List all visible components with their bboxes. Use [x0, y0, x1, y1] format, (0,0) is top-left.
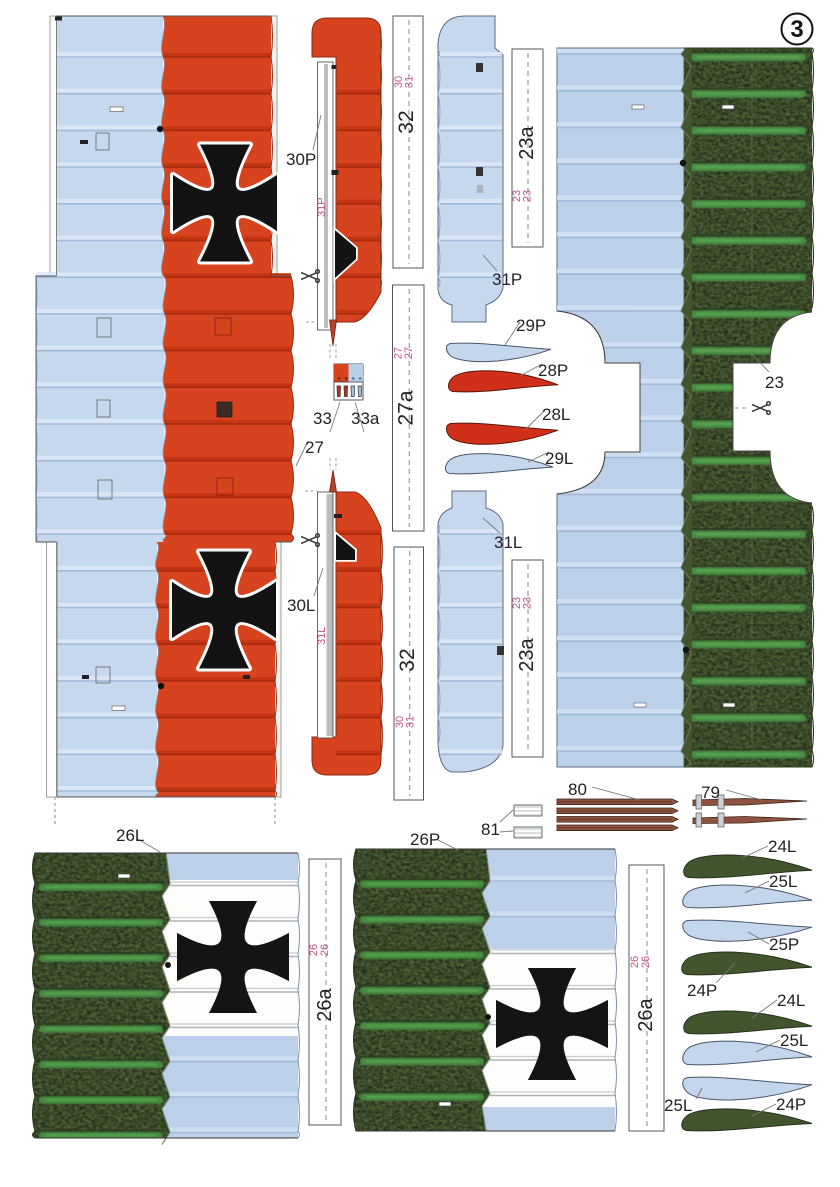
svg-text:25P: 25P — [769, 935, 799, 954]
svg-text:27a: 27a — [395, 390, 418, 425]
svg-text:24P: 24P — [776, 1095, 806, 1114]
svg-text:26L: 26L — [116, 826, 144, 845]
svg-text:25L: 25L — [664, 1096, 692, 1115]
svg-text:24P: 24P — [687, 981, 717, 1000]
svg-text:26a: 26a — [635, 997, 657, 1031]
svg-text:30P: 30P — [286, 150, 316, 169]
svg-text:31: 31 — [405, 716, 417, 728]
svg-text:79: 79 — [701, 783, 720, 802]
svg-text:26: 26 — [319, 944, 331, 956]
svg-text:23a: 23a — [516, 637, 538, 671]
svg-text:23: 23 — [765, 373, 784, 392]
svg-text:31P: 31P — [316, 197, 328, 217]
svg-text:23: 23 — [522, 597, 534, 609]
svg-text:25L: 25L — [769, 872, 797, 891]
svg-text:26P: 26P — [410, 830, 440, 849]
svg-text:24L: 24L — [777, 991, 805, 1010]
svg-text:32: 32 — [396, 648, 419, 671]
svg-text:28L: 28L — [542, 405, 570, 424]
svg-text:26: 26 — [640, 956, 652, 968]
svg-text:26a: 26a — [314, 987, 336, 1021]
svg-text:23: 23 — [522, 190, 534, 202]
svg-text:31L: 31L — [494, 533, 522, 552]
svg-text:24L: 24L — [768, 837, 796, 856]
svg-text:29L: 29L — [545, 449, 573, 468]
svg-text:28P: 28P — [538, 361, 568, 380]
svg-text:31L: 31L — [316, 627, 328, 645]
svg-text:31: 31 — [404, 76, 416, 88]
svg-text:27: 27 — [305, 438, 324, 457]
svg-text:27: 27 — [403, 347, 415, 359]
svg-text:80: 80 — [568, 780, 587, 799]
svg-text:23a: 23a — [516, 125, 538, 159]
svg-text:30L: 30L — [287, 596, 315, 615]
svg-text:33a: 33a — [351, 409, 380, 428]
svg-text:31P: 31P — [492, 270, 522, 289]
svg-text:81: 81 — [481, 820, 500, 839]
svg-text:25L: 25L — [780, 1031, 808, 1050]
svg-text:33: 33 — [313, 409, 332, 428]
svg-text:3: 3 — [790, 16, 803, 43]
svg-text:29P: 29P — [516, 316, 546, 335]
svg-text:32: 32 — [395, 110, 418, 133]
